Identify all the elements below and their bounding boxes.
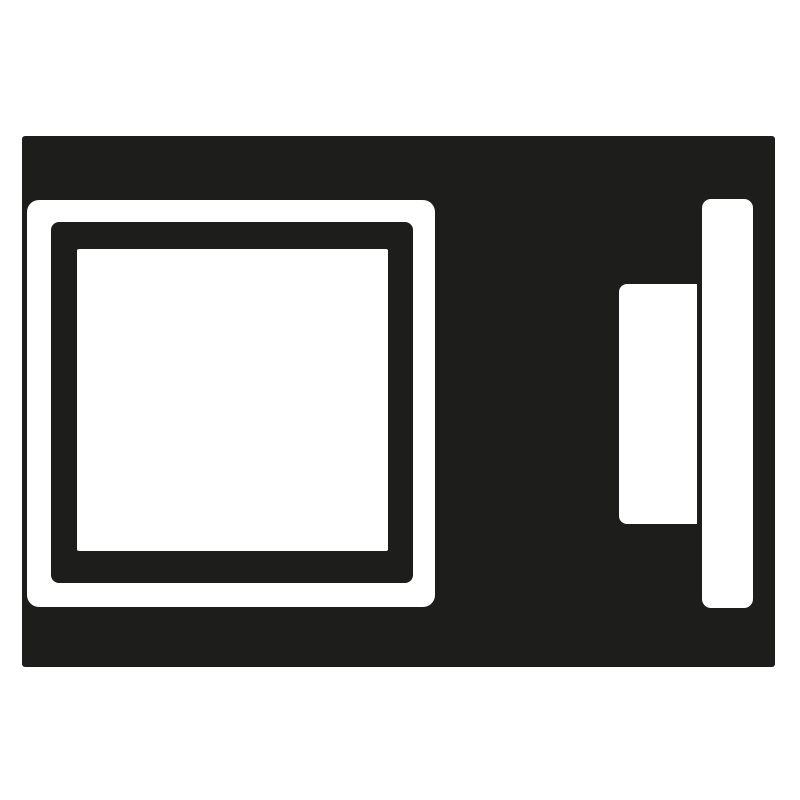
door-window [77,249,388,551]
door-frame-inner [51,222,413,583]
door-frame [27,200,435,607]
control-panel [619,284,697,524]
door-handle [702,199,753,608]
appliance-icon [0,0,800,800]
appliance-body [22,136,775,667]
